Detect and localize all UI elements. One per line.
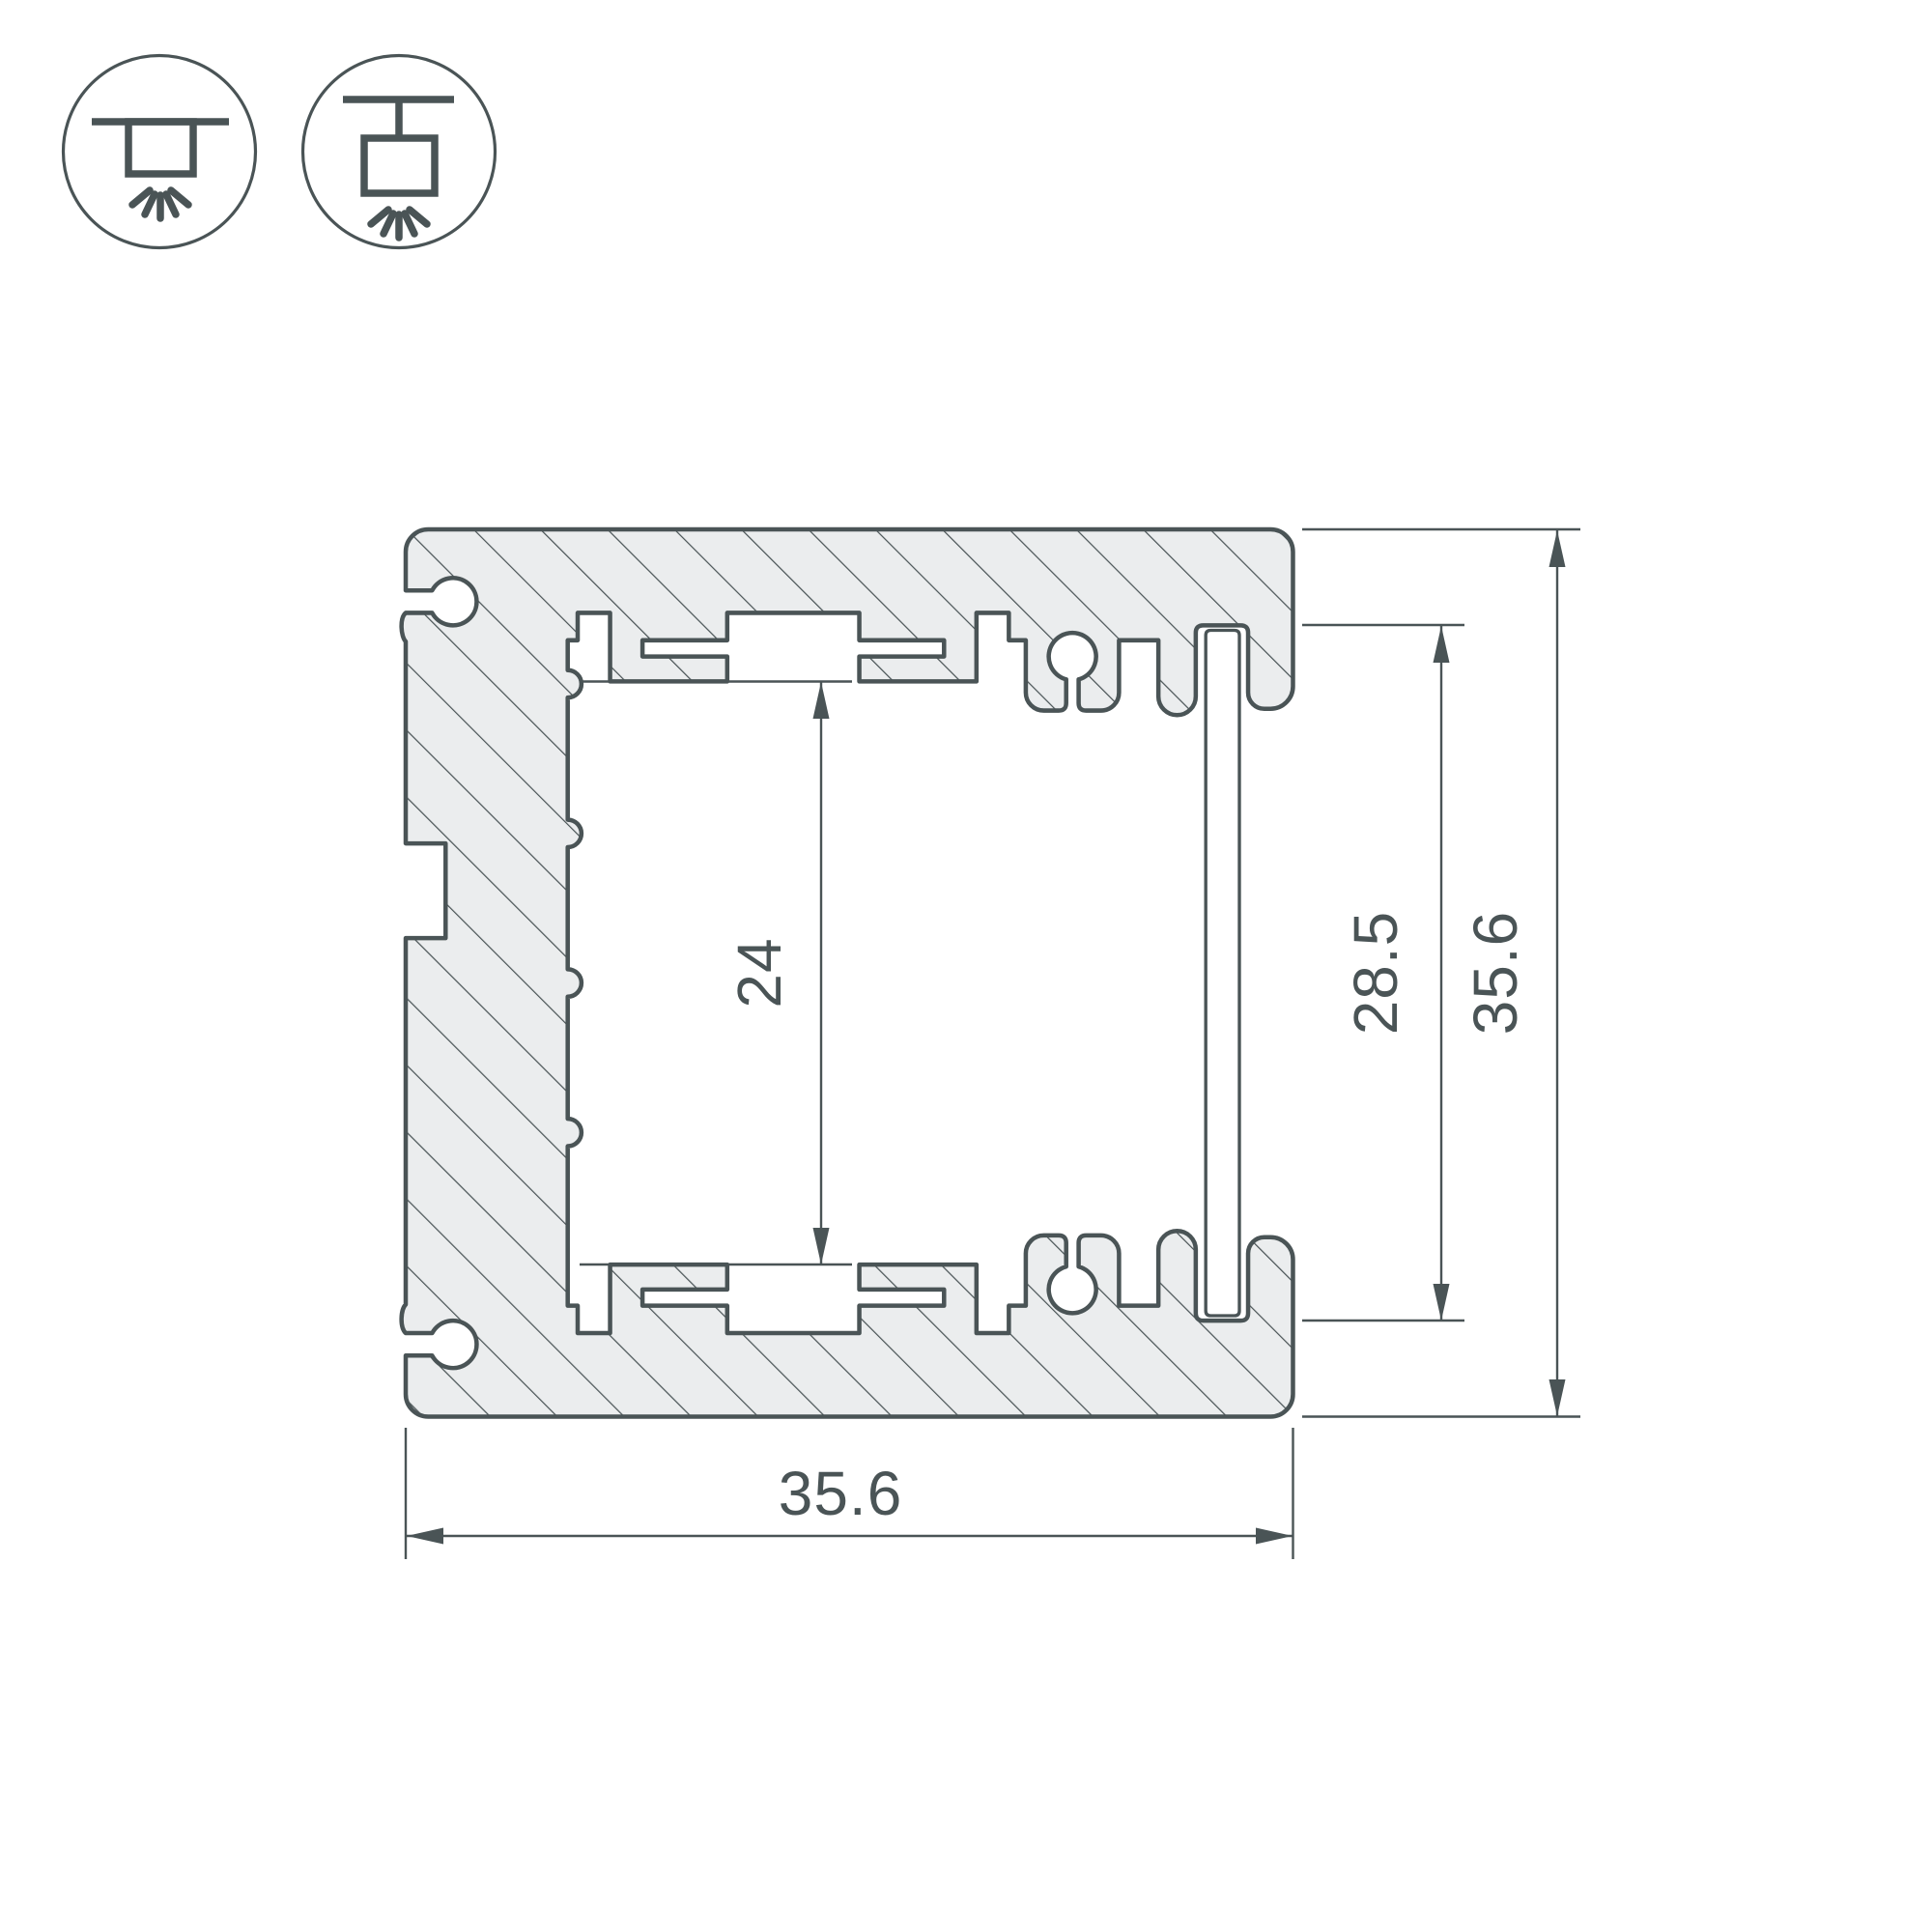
diffuser-plate — [1206, 630, 1239, 1316]
arrow-right-icon — [1256, 1528, 1293, 1545]
pendant-mount-light-icon — [303, 56, 496, 248]
profile-cross-section — [402, 529, 1293, 1416]
dimension-label-width: 35.6 — [779, 1459, 903, 1528]
dimension-overall-height: 35.6 — [1461, 530, 1566, 1416]
light-rays — [132, 190, 188, 218]
dimension-label-28-5: 28.5 — [1341, 911, 1410, 1036]
dimension-label-24: 24 — [724, 937, 794, 1008]
arrow-up-icon — [1434, 626, 1450, 663]
dimension-label-height: 35.6 — [1461, 911, 1530, 1036]
dimension-opening-height: 28.5 — [1341, 626, 1450, 1321]
arrow-up-icon — [813, 682, 830, 719]
profile-body — [402, 529, 1293, 1416]
fixture-box — [364, 138, 435, 193]
surface-mount-light-icon — [64, 56, 256, 248]
arrow-down-icon — [813, 1228, 830, 1264]
arrow-down-icon — [1549, 1379, 1566, 1416]
technical-drawing: 24 28.5 35.6 35.6 — [0, 0, 1932, 1932]
drawing-canvas: 24 28.5 35.6 35.6 — [0, 0, 1932, 1932]
dimension-inner-height: 24 — [724, 682, 830, 1264]
arrow-left-icon — [407, 1528, 443, 1545]
arrow-down-icon — [1434, 1284, 1450, 1321]
light-rays — [371, 210, 427, 238]
fixture-box — [128, 122, 193, 174]
dimension-overall-width: 35.6 — [407, 1459, 1293, 1545]
arrow-up-icon — [1549, 530, 1566, 567]
